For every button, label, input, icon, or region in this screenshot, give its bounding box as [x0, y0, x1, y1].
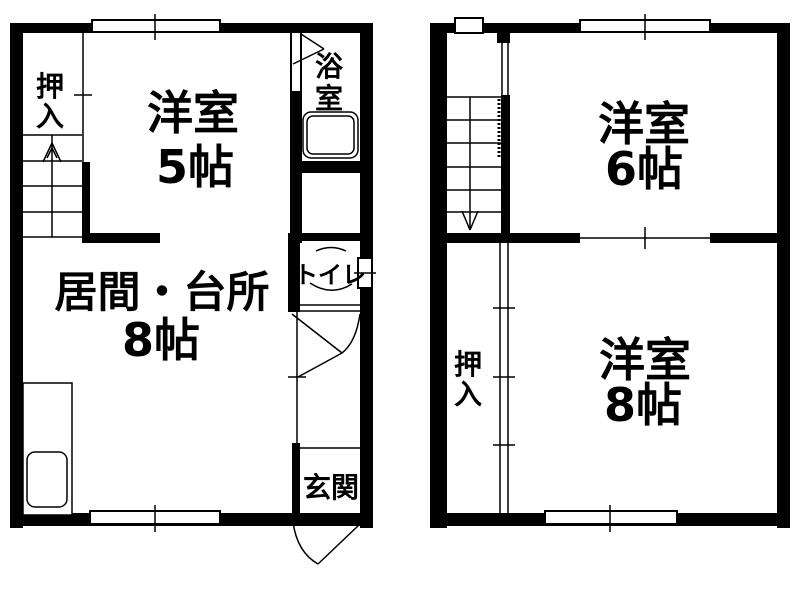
- f1-toilet-label: トイレ: [294, 261, 366, 289]
- f1-living-kitchen-size: 8帖: [122, 313, 200, 367]
- f1-hall-door-swing-arc: [342, 314, 360, 353]
- first-floor-plan: 押 入 洋室 5帖 浴 室 居間・台所 8帖 トイレ 玄関: [10, 14, 376, 564]
- f1-western-room-name: 洋室: [147, 86, 239, 140]
- f2-stair-wall-stub: [497, 33, 510, 43]
- f2-western-room-6-size: 6帖: [605, 142, 683, 196]
- f1-bath-door-fold-line-1: [301, 34, 324, 49]
- floor-plan-svg: 押 入 洋室 5帖 浴 室 居間・台所 8帖 トイレ 玄関: [0, 0, 800, 600]
- f1-living-kitchen-name: 居間・台所: [55, 268, 270, 318]
- f2-stair-window: [455, 18, 483, 33]
- f2-mid-wall-right: [710, 233, 790, 243]
- f2-mid-wall-left: [447, 233, 580, 243]
- f1-western-room-size: 5帖: [156, 140, 234, 194]
- f2-staircase-down: [447, 33, 510, 237]
- f1-hallway: [288, 312, 360, 446]
- floor-plan-canvas: 押 入 洋室 5帖 浴 室 居間・台所 8帖 トイレ 玄関: [0, 0, 800, 600]
- f1-toilet-bowl-top-curve: [316, 248, 346, 252]
- f1-entrance-door-swing-arc: [293, 522, 318, 564]
- f1-staircase-up: [23, 135, 82, 237]
- f1-closet-label-char2: 入: [36, 100, 64, 133]
- f1-hall-door-leaf-1: [292, 314, 342, 353]
- f2-closet-label-char1: 押: [454, 348, 482, 381]
- f1-kitchen-counter: [23, 383, 72, 515]
- f1-stair-side-wall: [82, 162, 90, 243]
- f2-western-room-8-size: 8帖: [604, 378, 682, 432]
- f2-stair-side-wall: [501, 95, 510, 237]
- second-floor-plan: 洋室 6帖 押 入 洋室 8帖: [430, 14, 790, 532]
- f2-outer-wall-left: [430, 23, 447, 528]
- f2-closet-partition: [493, 243, 515, 513]
- f1-bathtub-inner: [307, 116, 354, 154]
- f1-entrance-door-leaf: [318, 524, 360, 564]
- f1-outer-wall-left: [10, 23, 23, 528]
- f1-hall-door-leaf-2: [298, 353, 342, 377]
- f2-closet-label-char2: 入: [454, 378, 482, 411]
- f1-bath-label-char2: 室: [315, 82, 343, 115]
- f2-bottom-window: [545, 511, 677, 524]
- f1-bath-wall-bottom: [290, 161, 360, 173]
- f1-closet-label-char1: 押: [36, 70, 64, 103]
- f1-bath-label-char1: 浴: [315, 50, 344, 83]
- f1-entrance-wall-left: [292, 443, 300, 513]
- f1-room-divider-wall: [90, 233, 160, 243]
- f1-entrance-label: 玄関: [303, 471, 359, 504]
- f2-outer-wall-right: [777, 23, 790, 528]
- f1-top-window: [92, 20, 220, 32]
- f1-sink: [27, 452, 67, 507]
